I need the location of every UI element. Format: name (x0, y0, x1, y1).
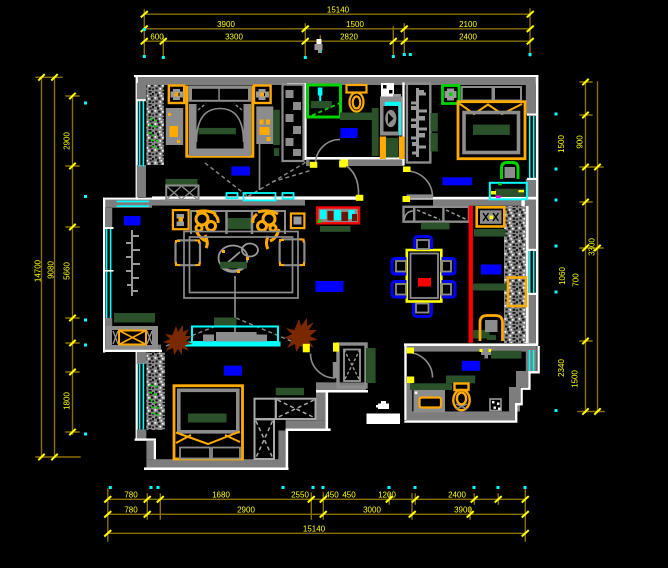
svg-text:2900: 2900 (63, 132, 72, 150)
svg-text:2340: 2340 (557, 359, 566, 377)
svg-text:780: 780 (124, 506, 138, 515)
svg-text:3900: 3900 (454, 506, 472, 515)
svg-text:14700: 14700 (34, 259, 43, 282)
svg-text:15140: 15140 (327, 6, 350, 15)
svg-text:900: 900 (576, 135, 585, 149)
svg-text:1200: 1200 (378, 491, 396, 500)
svg-text:3900: 3900 (217, 20, 235, 29)
svg-text:3300: 3300 (588, 238, 597, 256)
svg-text:2400: 2400 (459, 33, 477, 42)
svg-text:1680: 1680 (212, 491, 230, 500)
svg-text:2100: 2100 (459, 20, 477, 29)
svg-text:2400: 2400 (448, 491, 466, 500)
svg-text:2900: 2900 (237, 506, 255, 515)
svg-text:2550: 2550 (291, 491, 309, 500)
svg-text:3000: 3000 (363, 506, 381, 515)
svg-text:15140: 15140 (303, 525, 326, 534)
svg-text:3300: 3300 (225, 33, 243, 42)
svg-text:450: 450 (325, 491, 339, 500)
svg-text:1800: 1800 (63, 392, 72, 410)
svg-text:600: 600 (150, 33, 164, 42)
svg-text:1500: 1500 (557, 135, 566, 153)
svg-text:700: 700 (572, 273, 581, 287)
svg-text:1500: 1500 (346, 20, 364, 29)
svg-text:9080: 9080 (47, 261, 56, 279)
svg-text:1500: 1500 (571, 370, 580, 388)
svg-text:780: 780 (124, 491, 138, 500)
svg-text:2820: 2820 (340, 33, 358, 42)
svg-text:450: 450 (342, 491, 356, 500)
svg-text:1060: 1060 (558, 267, 567, 285)
svg-text:5660: 5660 (63, 262, 72, 280)
